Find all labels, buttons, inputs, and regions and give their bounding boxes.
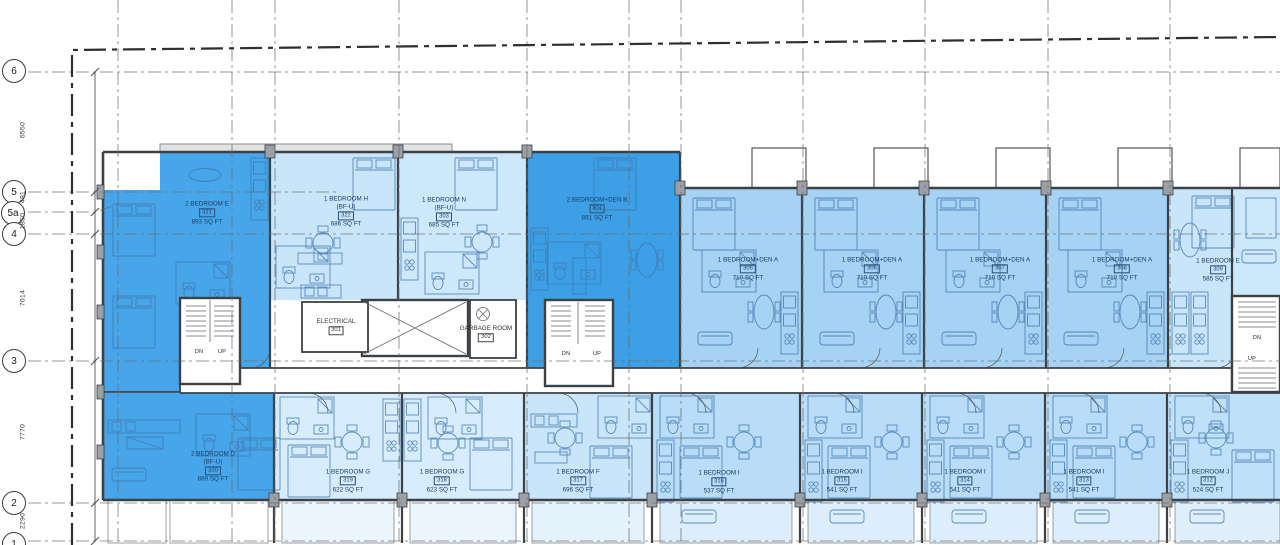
unit-name: 1 BEDROOM G xyxy=(420,468,464,476)
unit-name: 1 BEDROOM G xyxy=(326,468,370,476)
unit-label-308: 1 BEDROOM+DEN A 308 710 SQ FT xyxy=(1092,256,1152,281)
unit-label-318: 1 BEDROOM G 318 623 SQ FT xyxy=(420,468,464,493)
unit-number: 317 xyxy=(570,477,586,486)
unit-number: 303 xyxy=(436,213,452,222)
unit-name: 1 BEDROOM E xyxy=(1196,257,1240,265)
unit-number: 307 xyxy=(992,265,1008,274)
stair-up-label: UP xyxy=(218,349,226,355)
room-name: GARBAGE ROOM xyxy=(460,325,512,333)
unit-area: 623 SQ FT xyxy=(420,486,464,494)
unit-label-306: 1 BEDROOM+DEN A 306 710 SQ FT xyxy=(842,256,902,281)
unit-number: 304 xyxy=(589,205,605,214)
unit-name: 1 BEDROOM I xyxy=(821,468,862,476)
unit-area: 524 SQ FT xyxy=(1187,486,1230,494)
unit-area: 891 SQ FT xyxy=(567,214,628,222)
unit-label-317: 1 BEDROOM F 317 696 SQ FT xyxy=(556,468,599,493)
stair-up-label: UP xyxy=(593,351,601,357)
unit-name: 2 BEDROOM E xyxy=(185,200,229,208)
unit-name: 1 BEDROOM F xyxy=(556,468,599,476)
unit-number: 318 xyxy=(434,477,450,486)
unit-area: 710 SQ FT xyxy=(842,274,902,282)
unit-number: 312 xyxy=(1200,477,1216,486)
unit-bf: (BF-U) xyxy=(324,203,368,211)
unit-label-309: 1 BEDROOM E 309 585 SQ FT xyxy=(1196,257,1240,282)
unit-bf: (BF-U) xyxy=(422,204,466,212)
grid-bubble-6: 6 xyxy=(2,59,26,83)
unit-name: 1 BEDROOM I xyxy=(1063,468,1104,476)
unit-number: 306 xyxy=(864,265,880,274)
grid-bubble-label: 4 xyxy=(11,229,17,240)
unit-number: 309 xyxy=(1210,266,1226,275)
unit-label-321: 2 BEDROOM E 321 893 SQ FT xyxy=(185,200,229,225)
unit-area: 710 SQ FT xyxy=(1092,274,1152,282)
unit-name: 1 BEDROOM N xyxy=(422,196,466,204)
unit-label-313: 1 BEDROOM I 313 541 SQ FT xyxy=(1063,468,1104,493)
unit-area: 622 SQ FT xyxy=(326,486,370,494)
unit-area: 541 SQ FT xyxy=(1063,486,1104,494)
room-number: 301 xyxy=(328,327,344,336)
dimension-7014: 7014 xyxy=(20,290,27,306)
stair-dn-label: DN xyxy=(195,349,203,355)
grid-bubble-3: 3 xyxy=(2,349,26,373)
unit-area: 585 SQ FT xyxy=(1196,275,1240,283)
unit-name: 1 BEDROOM+DEN A xyxy=(718,256,778,264)
unit-label-304: 2 BEDROOM+DEN B 304 891 SQ FT xyxy=(567,196,628,221)
unit-number: 321 xyxy=(199,209,215,218)
grid-bubble-2: 2 xyxy=(2,491,26,515)
unit-name: 1 BEDROOM H xyxy=(324,195,368,203)
grid-bubble-label: 5 xyxy=(11,187,17,198)
unit-number: 313 xyxy=(1076,477,1092,486)
room-label-electrical: ELECTRICAL 301 xyxy=(317,318,356,336)
unit-number: 305 xyxy=(740,265,756,274)
grid-bubble-label: 6 xyxy=(11,66,17,77)
room-name: ELECTRICAL xyxy=(317,318,356,326)
unit-number: 314 xyxy=(957,477,973,486)
unit-number: 320 xyxy=(205,467,221,476)
unit-number: 315 xyxy=(834,477,850,486)
unit-name: 1 BEDROOM+DEN A xyxy=(970,256,1030,264)
floor-plan-stage: 6 5 5a 4 3 2 1 6550 481 1850 7014 7770 2… xyxy=(0,0,1280,545)
grid-bubble-label: 2 xyxy=(11,498,17,509)
stair-dn-label: DN xyxy=(1253,335,1261,341)
unit-area: 710 SQ FT xyxy=(970,274,1030,282)
unit-label-316: 1 BEDROOM I 316 537 SQ FT xyxy=(698,469,739,494)
unit-area: 685 SQ FT xyxy=(422,222,466,230)
unit-label-303: 1 BEDROOM N (BF-U) 303 685 SQ FT xyxy=(422,196,466,229)
unit-number: 319 xyxy=(340,477,356,486)
unit-label-320: 2 BEDROOM D (BF-U) 320 889 SQ FT xyxy=(191,450,235,483)
grid-bubble-label: 3 xyxy=(11,356,17,367)
unit-label-319: 1 BEDROOM G 319 622 SQ FT xyxy=(326,468,370,493)
room-number: 302 xyxy=(478,334,494,343)
grid-bubble-label: 5a xyxy=(7,208,18,219)
dimension-6550: 6550 xyxy=(20,122,27,138)
dimension-481: 481 xyxy=(20,191,27,203)
unit-label-322: 1 BEDROOM H (BF-U) 322 686 SQ FT xyxy=(324,195,368,228)
unit-area: 893 SQ FT xyxy=(185,218,229,226)
stair-up-label: UP xyxy=(1248,356,1256,362)
dimension-7770: 7770 xyxy=(20,424,27,440)
unit-label-305: 1 BEDROOM+DEN A 305 710 SQ FT xyxy=(718,256,778,281)
unit-number: 316 xyxy=(711,478,727,487)
unit-label-307: 1 BEDROOM+DEN A 307 710 SQ FT xyxy=(970,256,1030,281)
room-label-garbage: GARBAGE ROOM 302 xyxy=(460,325,512,343)
unit-area: 686 SQ FT xyxy=(324,221,368,229)
unit-label-312: 1 BEDROOM J 312 524 SQ FT xyxy=(1187,468,1230,493)
unit-area: 710 SQ FT xyxy=(718,274,778,282)
unit-area: 889 SQ FT xyxy=(191,476,235,484)
unit-name: 1 BEDROOM I xyxy=(698,469,739,477)
stair-dn-label: DN xyxy=(562,351,570,357)
dimension-2290: 2290 xyxy=(20,513,27,529)
unit-name: 1 BEDROOM I xyxy=(944,468,985,476)
grid-bubble-label: 1 xyxy=(11,539,17,545)
unit-number: 308 xyxy=(1114,265,1130,274)
unit-name: 2 BEDROOM D xyxy=(191,450,235,458)
unit-area: 541 SQ FT xyxy=(944,486,985,494)
unit-area: 537 SQ FT xyxy=(698,487,739,495)
unit-area: 696 SQ FT xyxy=(556,486,599,494)
unit-name: 1 BEDROOM+DEN A xyxy=(1092,256,1152,264)
unit-number: 322 xyxy=(338,212,354,221)
unit-name: 1 BEDROOM+DEN A xyxy=(842,256,902,264)
unit-label-315: 1 BEDROOM I 315 541 SQ FT xyxy=(821,468,862,493)
unit-area: 541 SQ FT xyxy=(821,486,862,494)
unit-bf: (BF-U) xyxy=(191,458,235,466)
unit-name: 2 BEDROOM+DEN B xyxy=(567,196,628,204)
unit-name: 1 BEDROOM J xyxy=(1187,468,1230,476)
dimension-1850: 1850 xyxy=(20,213,27,229)
unit-label-314: 1 BEDROOM I 314 541 SQ FT xyxy=(944,468,985,493)
